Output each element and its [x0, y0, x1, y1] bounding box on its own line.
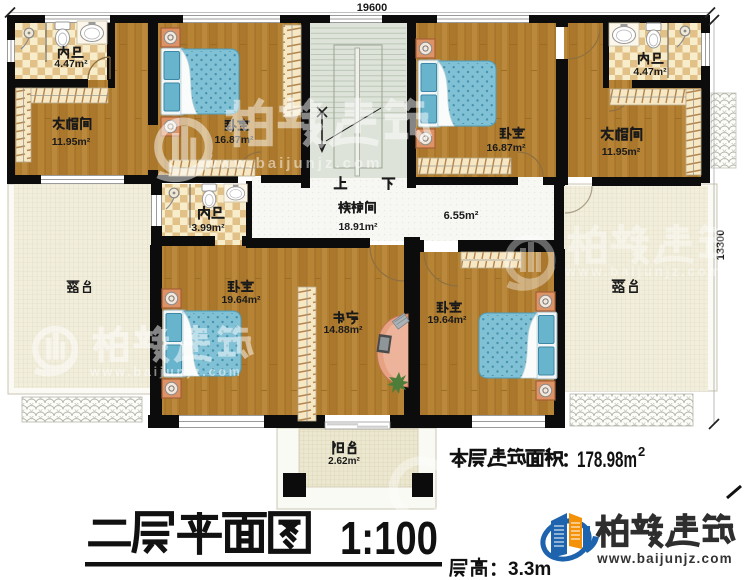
svg-text:www.baijunjz.com: www.baijunjz.com: [564, 264, 723, 279]
svg-text:2: 2: [638, 444, 645, 459]
svg-text:1:100: 1:100: [340, 512, 438, 564]
svg-text:178.98m: 178.98m: [577, 447, 637, 472]
svg-text:16.87m²: 16.87m²: [486, 142, 526, 154]
svg-text:：3.3m: ：3.3m: [489, 559, 551, 580]
svg-text:18.91m²: 18.91m²: [338, 221, 378, 233]
svg-text:www.baijunjz.com: www.baijunjz.com: [596, 551, 733, 566]
svg-text:19.64m²: 19.64m²: [221, 294, 261, 306]
svg-text:4.47m²: 4.47m²: [54, 58, 88, 70]
svg-text:2.62m²: 2.62m²: [328, 456, 360, 467]
svg-text:19.64m²: 19.64m²: [427, 314, 467, 326]
svg-text:www.baijunjz.com: www.baijunjz.com: [89, 365, 243, 379]
svg-text:3.99m²: 3.99m²: [191, 222, 225, 234]
svg-text:11.95m²: 11.95m²: [602, 146, 641, 158]
svg-text:11.95m²: 11.95m²: [52, 136, 91, 148]
svg-text:4.47m²: 4.47m²: [633, 66, 667, 78]
svg-text:6.55m²: 6.55m²: [444, 210, 479, 222]
svg-text:14.88m²: 14.88m²: [323, 324, 363, 336]
svg-text:www.baijunjz.com: www.baijunjz.com: [204, 155, 382, 172]
